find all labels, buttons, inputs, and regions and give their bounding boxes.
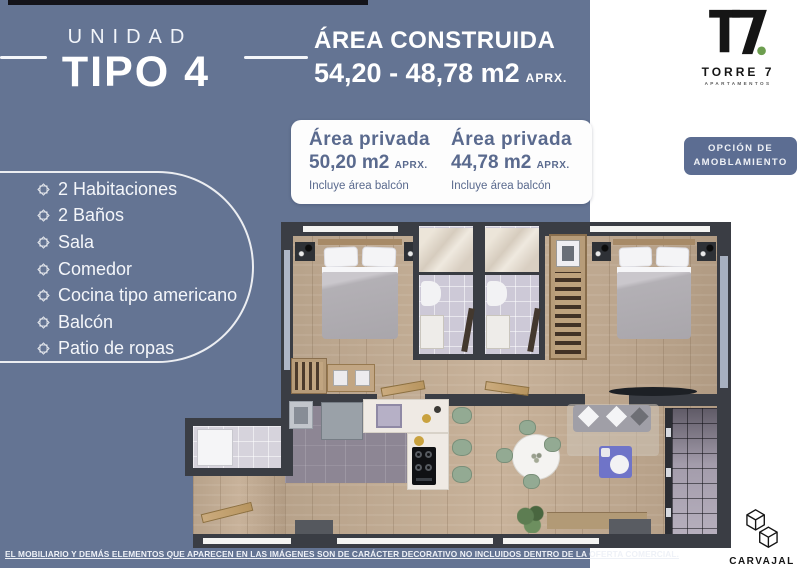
knot-bullet-icon <box>37 263 50 276</box>
toilet-2 <box>487 281 507 306</box>
bar-stool <box>452 407 472 424</box>
private-area-2-note: Incluye área balcón <box>451 180 572 192</box>
unit-label: UNIDAD <box>55 26 205 49</box>
dining-chair <box>519 420 536 435</box>
coffee-table-blue <box>599 446 632 478</box>
bed1-headboard <box>318 239 402 245</box>
disclaimer-text: EL MOBILIARIO Y DEMÁS ELEMENTOS QUE APAR… <box>5 549 679 559</box>
furnish-option-line1: OPCIÓN DE <box>708 142 773 156</box>
wall-pillar <box>295 520 333 534</box>
burner <box>415 451 422 458</box>
island-counter-side <box>407 433 449 490</box>
top-dark-strip <box>8 0 368 5</box>
private-area-1-value: 50,20 m2 APRX. <box>309 152 430 174</box>
dresser-panel <box>333 370 348 386</box>
knot-bullet-icon <box>37 342 50 355</box>
kitchen-sink-steel <box>289 401 313 429</box>
mirror-inner <box>562 246 574 261</box>
shoe-shelves <box>555 272 581 354</box>
dresser-panel <box>355 370 370 386</box>
knot-bullet-icon <box>37 236 50 249</box>
dining-chair <box>544 437 561 452</box>
decor-line-right <box>244 56 308 59</box>
area-built-number: 54,20 - 48,78 m2 <box>314 58 520 88</box>
decor-line-left <box>0 56 47 59</box>
bed2-headboard <box>613 239 695 245</box>
window-bottom-1 <box>203 538 291 544</box>
private-area-2-title: Área privada <box>451 129 572 151</box>
feature-label: 2 Baños <box>58 205 124 226</box>
coffee-item <box>434 406 441 413</box>
window-top-right <box>590 226 710 232</box>
bedroom1-closet <box>291 358 327 394</box>
island-counter-top <box>363 399 449 433</box>
laundry-wall-top <box>185 418 285 426</box>
coffee-item <box>422 414 431 423</box>
feature-label: Balcón <box>58 312 113 333</box>
dining-chair <box>496 448 513 463</box>
dining-chair <box>523 474 540 489</box>
sofa-cushion <box>606 406 627 427</box>
furnish-option-line2: AMOBLAMIENTO <box>693 156 787 170</box>
bed2-nightstand-right <box>697 242 716 261</box>
bed1-pillow-right <box>362 246 397 267</box>
knot-bullet-icon <box>37 209 50 222</box>
wardrobe-mirror <box>556 240 580 267</box>
island-sink <box>376 404 402 428</box>
knot-bullet-icon <box>37 183 50 196</box>
furnish-option-button[interactable]: OPCIÓN DE AMOBLAMIENTO <box>684 137 797 175</box>
coffee-item <box>414 436 424 446</box>
bar-stool <box>452 439 472 456</box>
unit-type-title: TIPO 4 <box>22 48 250 97</box>
feature-item-habitaciones: 2 Habitaciones <box>37 176 252 203</box>
washing-machine <box>197 429 233 466</box>
private-area-1-note: Incluye área balcón <box>309 180 430 192</box>
tv-console-bedroom2 <box>609 387 697 396</box>
shower-2 <box>485 228 539 272</box>
door-bathroom-2 <box>527 308 541 352</box>
shoe-wardrobe <box>549 234 587 360</box>
sofa-cushion <box>578 406 599 427</box>
area-built-value: 54,20 - 48,78 m2APRX. <box>314 58 567 89</box>
window-bottom-3 <box>503 538 599 544</box>
private-area-1-aprx: APRX. <box>395 160 428 171</box>
door-bathroom-1 <box>461 308 475 352</box>
bed1-nightstand-left <box>295 242 315 261</box>
table-book <box>601 448 610 457</box>
feature-label: Sala <box>58 232 94 253</box>
bed2-pillow-left <box>619 246 653 267</box>
laundry-wall-bottom <box>185 468 285 476</box>
sofa <box>573 405 651 432</box>
toilet-1 <box>421 281 441 306</box>
glass-notch <box>666 428 671 437</box>
burner <box>415 464 422 471</box>
carvajal-logo: CARVAJAL CONSTRUCTORES <box>729 508 795 568</box>
private-area-2-aprx: APRX. <box>537 160 570 171</box>
vanity-sink-1 <box>420 315 444 349</box>
private-area-2-number: 44,78 m2 <box>451 152 531 173</box>
cooktop-controls <box>416 478 432 481</box>
plant <box>517 505 545 533</box>
shower-glass-2 <box>485 272 539 275</box>
bed2-pillow-right <box>656 246 690 267</box>
burner <box>425 464 432 471</box>
glass-notch <box>666 468 671 477</box>
closet-clothes <box>295 362 323 390</box>
knot-bullet-icon <box>37 289 50 302</box>
floor-plan <box>185 222 733 548</box>
cooktop <box>412 447 436 485</box>
private-area-2: Área privada 44,78 m2 APRX. Incluye área… <box>451 129 572 192</box>
private-area-card: Área privada 50,20 m2 APRX. Incluye área… <box>291 120 592 204</box>
bedroom1-dresser <box>327 364 375 392</box>
window-bottom-2 <box>337 538 493 544</box>
bed1-duvet <box>322 272 398 339</box>
carvajal-cubes-icon <box>739 508 785 550</box>
bed2-duvet <box>617 272 691 339</box>
bed1-pillow-left <box>324 246 359 267</box>
sideboard-dark-block <box>609 519 651 534</box>
window-bedroom1 <box>284 250 290 370</box>
bathroom-2 <box>479 222 545 360</box>
area-built-aprx: APRX. <box>526 71 568 85</box>
shower-1 <box>419 228 473 272</box>
private-area-1: Área privada 50,20 m2 APRX. Incluye área… <box>309 129 430 192</box>
burner <box>425 451 432 458</box>
torre7-logo: TORRE 7 APARTAMENTOS <box>694 8 782 86</box>
wall-hall-center <box>425 394 585 406</box>
vanity-sink-2 <box>486 315 510 349</box>
torre7-subtitle: APARTAMENTOS <box>694 81 782 86</box>
bed2-nightstand-left <box>592 242 611 261</box>
area-built-title: ÁREA CONSTRUIDA <box>314 27 555 55</box>
knot-bullet-icon <box>37 316 50 329</box>
brochure-page: UNIDAD TIPO 4 ÁREA CONSTRUIDA 54,20 - 48… <box>0 0 800 568</box>
sink-basin <box>294 407 308 424</box>
window-top-left <box>303 226 398 232</box>
private-area-1-title: Área privada <box>309 129 430 151</box>
private-area-2-value: 44,78 m2 APRX. <box>451 152 572 174</box>
torre7-name: TORRE 7 <box>694 65 782 79</box>
feature-label: 2 Habitaciones <box>58 179 177 200</box>
t7-logo-icon <box>706 8 770 58</box>
fridge <box>321 402 363 440</box>
carvajal-name: CARVAJAL <box>729 556 795 567</box>
sofa-cushion-dark <box>630 407 648 425</box>
glass-notch <box>666 508 671 517</box>
bar-stool <box>452 466 472 483</box>
balcony-floor <box>672 408 717 534</box>
bathroom-1 <box>413 222 479 360</box>
feature-label: Comedor <box>58 259 132 280</box>
private-area-1-number: 50,20 m2 <box>309 152 389 173</box>
table-centerpiece <box>530 451 543 464</box>
shower-glass-1 <box>419 272 473 275</box>
feature-label: Patio de ropas <box>58 338 174 359</box>
table-tray <box>610 455 629 474</box>
window-bedroom2 <box>720 256 728 388</box>
